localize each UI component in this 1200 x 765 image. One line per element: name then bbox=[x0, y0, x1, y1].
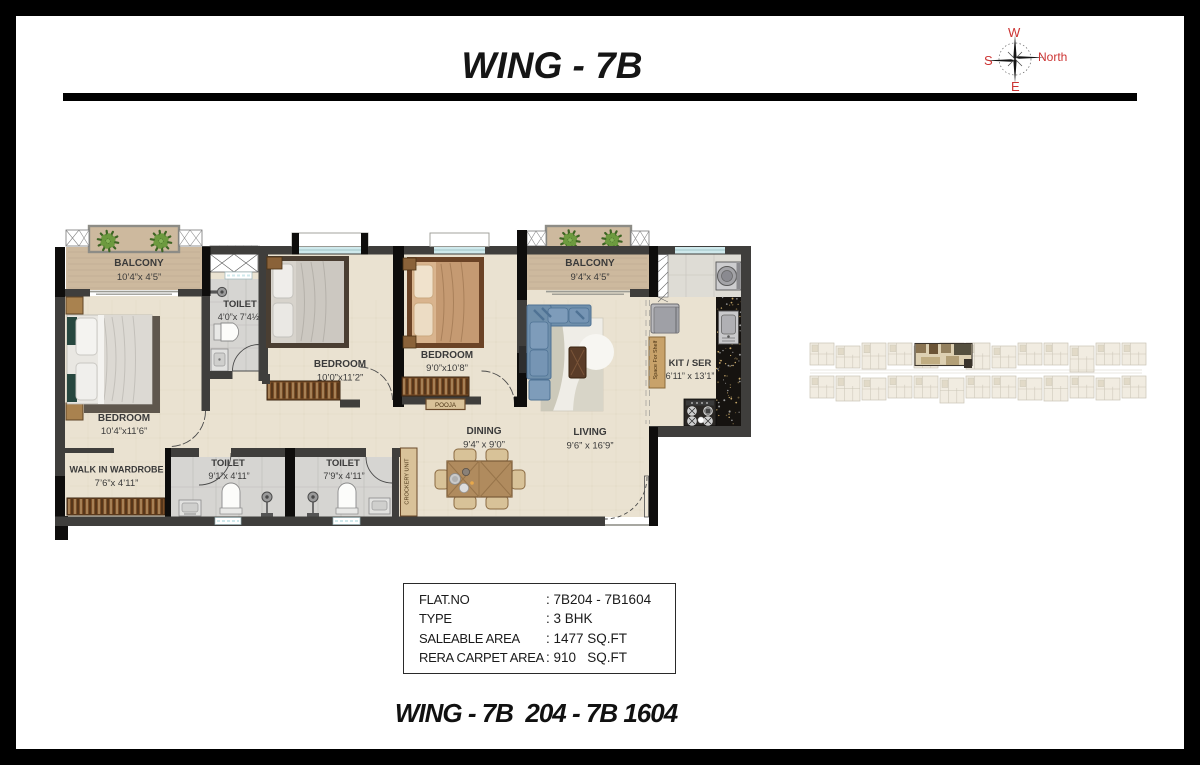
svg-text:7’6”x 4’11”: 7’6”x 4’11” bbox=[95, 478, 139, 489]
svg-text:9’0”x10’8”: 9’0”x10’8” bbox=[426, 363, 468, 374]
svg-text:POOJA: POOJA bbox=[435, 402, 457, 409]
svg-text:9’6” x 16’9”: 9’6” x 16’9” bbox=[567, 441, 614, 452]
svg-text:10’4”x 4’5”: 10’4”x 4’5” bbox=[117, 272, 161, 283]
svg-text:BALCONY: BALCONY bbox=[114, 258, 164, 269]
svg-text:9’1”x 4’11”: 9’1”x 4’11” bbox=[208, 471, 249, 481]
svg-text:KIT / SER: KIT / SER bbox=[669, 358, 712, 369]
svg-text:BEDROOM: BEDROOM bbox=[98, 413, 150, 424]
svg-text:Space For Shelf: Space For Shelf bbox=[653, 340, 659, 379]
svg-text:S: S bbox=[984, 53, 993, 68]
svg-text:WALK IN WARDROBE: WALK IN WARDROBE bbox=[70, 465, 164, 475]
svg-text:TOILET: TOILET bbox=[326, 458, 360, 469]
svg-text:BEDROOM: BEDROOM bbox=[421, 350, 473, 361]
svg-text:W: W bbox=[1008, 25, 1021, 40]
svg-text:7’9”x 4’11”: 7’9”x 4’11” bbox=[323, 471, 364, 481]
svg-text:BALCONY: BALCONY bbox=[565, 258, 615, 269]
svg-text:North: North bbox=[1038, 50, 1067, 64]
svg-text:TOILET: TOILET bbox=[223, 299, 257, 310]
svg-text:4’0”x 7’4½”: 4’0”x 7’4½” bbox=[218, 312, 263, 322]
svg-text:9’4” x 9’0”: 9’4” x 9’0” bbox=[463, 440, 505, 451]
svg-text:DINING: DINING bbox=[467, 426, 502, 437]
svg-text:E: E bbox=[1011, 79, 1020, 94]
svg-text:BEDROOM: BEDROOM bbox=[314, 359, 366, 370]
svg-text:10’4”x11’6”: 10’4”x11’6” bbox=[101, 426, 147, 437]
svg-text:6’11” x 13’1”: 6’11” x 13’1” bbox=[666, 371, 715, 381]
svg-text:9’4”x 4’5”: 9’4”x 4’5” bbox=[570, 272, 609, 283]
svg-text:CROCKERY UNIT: CROCKERY UNIT bbox=[405, 458, 411, 505]
svg-text:LIVING: LIVING bbox=[573, 427, 607, 438]
svg-text:10’0”x11’2”: 10’0”x11’2” bbox=[317, 373, 363, 384]
